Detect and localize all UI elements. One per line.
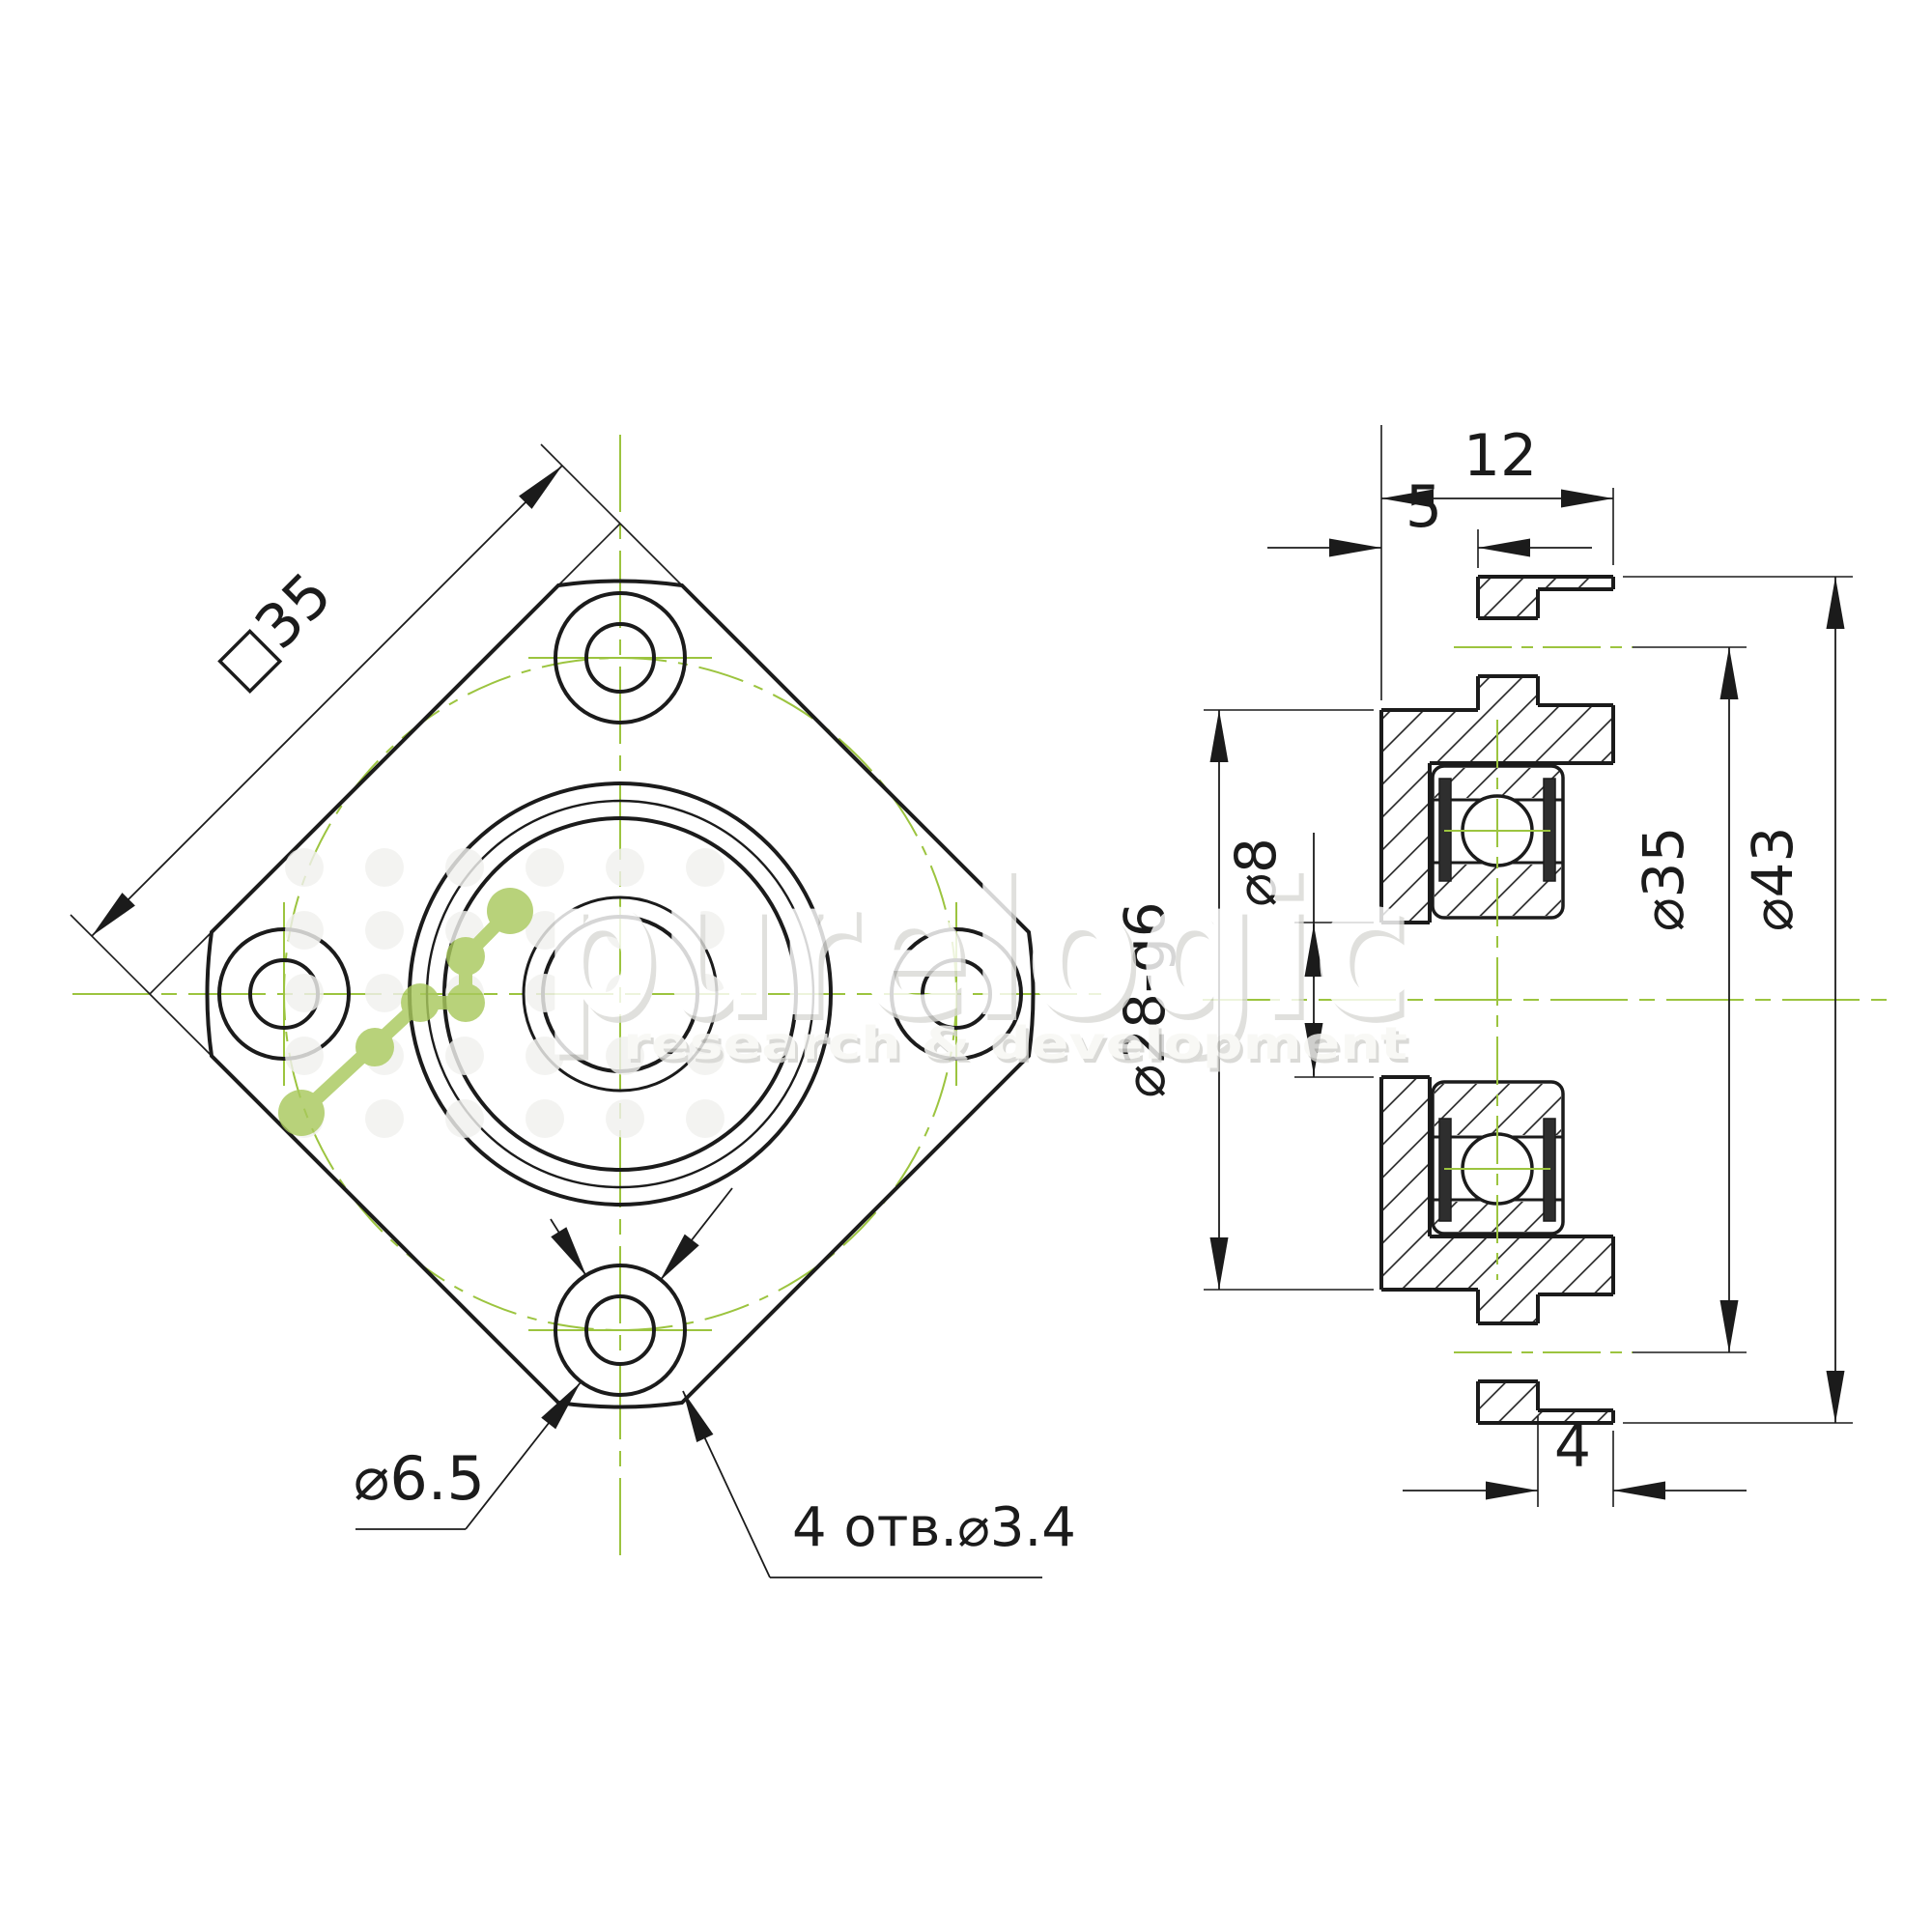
drawing-canvas: □35 ⌀6.5 4 отв.⌀3.4 (0, 0, 1932, 1932)
watermark: purelogic purelogic research & developme… (278, 836, 1415, 1138)
square-size-label: □35 (201, 558, 345, 702)
dim-counterbore-depth: 4 (1403, 1413, 1747, 1507)
bolt-circle-label: ⌀35 (1631, 827, 1696, 932)
dim-pilot-length: 5 (1267, 473, 1592, 568)
flange-diameter-label: ⌀43 (1740, 827, 1805, 932)
drawing-page: □35 ⌀6.5 4 отв.⌀3.4 (0, 0, 1932, 1932)
holes-label: 4 отв.⌀3.4 (792, 1496, 1076, 1559)
counterbore-callout: ⌀6.5 (354, 1188, 732, 1529)
pilot-length-label: 5 (1406, 473, 1442, 541)
overall-width-label: 12 (1463, 422, 1537, 490)
dim-overall-width: 12 (1381, 422, 1613, 700)
square-dimension: □35 (71, 444, 620, 994)
counterbore-depth-label: 4 (1554, 1413, 1591, 1481)
counterbore-label: ⌀6.5 (354, 1443, 485, 1514)
watermark-tagline: research & development research & develo… (623, 1017, 1410, 1073)
tagline-text: research & development (623, 1017, 1407, 1069)
